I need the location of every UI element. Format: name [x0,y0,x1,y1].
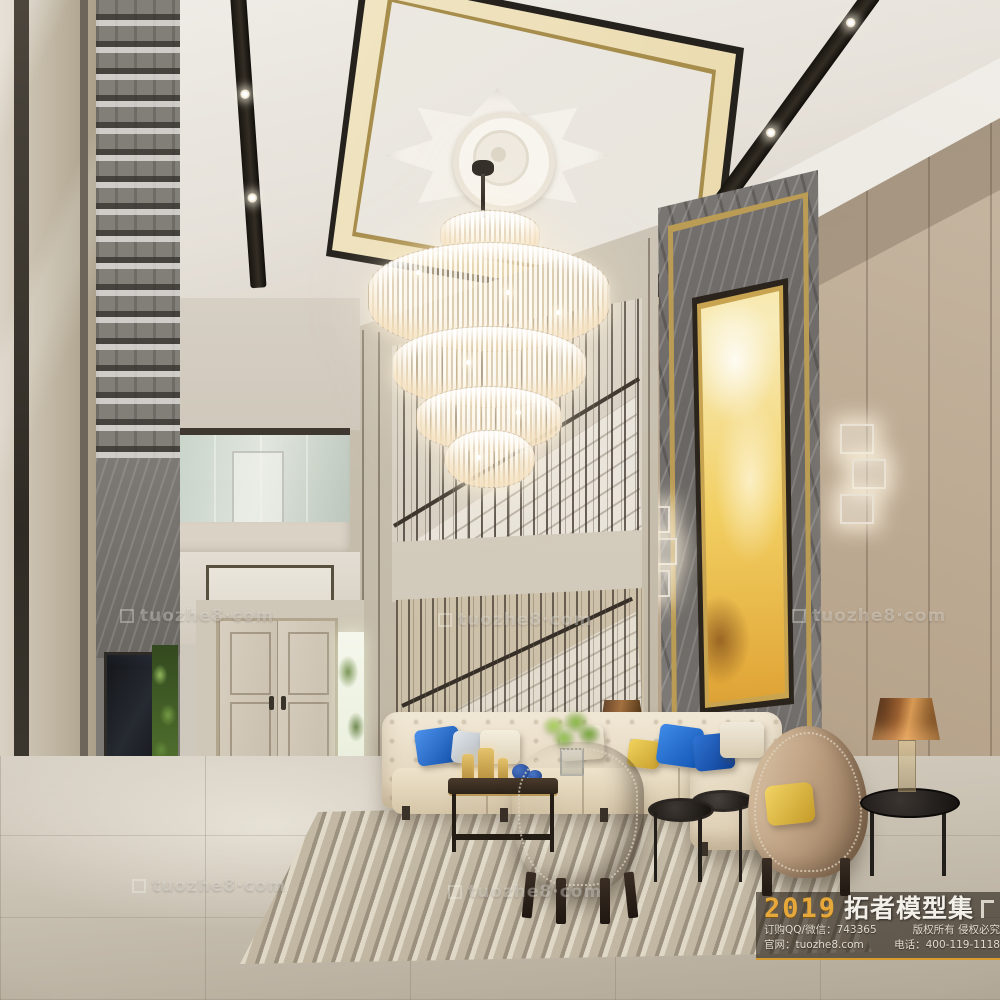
banner-contact-row: 订购QQ/微信：743365 版权所有 侵权必究 [764,923,1000,938]
banner-rights: 版权所有 侵权必究 [913,923,1000,938]
banner-corner-mark-icon [981,900,994,918]
watermark: tuozhe8·com [448,882,602,902]
banner-order-qq: 订购QQ/微信：743365 [764,923,877,938]
sofa-leg [402,806,410,820]
vendor-watermark-banner: 2019 拓者模型集 订购QQ/微信：743365 版权所有 侵权必究 官网：t… [756,892,1000,960]
chandelier-tier [444,430,536,488]
door-left-leaf [219,621,277,777]
door-panel [288,702,328,762]
nesting-table-legs [654,812,702,882]
left-wall-metal-strip [80,0,88,884]
banner-brand-name: 拓者模型集 [844,895,974,923]
gold-vase-decor [498,758,508,780]
mezzanine-wall [168,298,360,430]
crystal-sparkle [416,270,421,275]
upper-hallway-door [232,451,284,527]
yellow-pillow [764,782,816,827]
banner-website: 官网：tuozhe8.com [764,938,864,953]
watermark-text: tuozhe8·com [458,610,592,630]
gold-vase-decor [462,754,474,780]
wall-reveal-line [648,238,650,778]
interior-render-photo: tuozhe8·com tuozhe8·com tuozhe8·com tuoz… [0,0,1000,1000]
taupe-velvet-armchair-back [512,742,644,892]
table-lamp-glass-base [898,740,916,792]
crystal-chandelier [356,160,620,492]
banner-phone: 电话：400-119-1118 [894,938,1000,953]
crystal-sparkle [466,360,471,365]
sconce-glow-square [840,494,874,524]
planter-greenery [152,645,178,773]
door-panel [230,702,270,762]
column-fretwork-panel [96,0,180,458]
banner-site-row: 官网：tuozhe8.com 电话：400-119-1118 [764,938,1000,953]
spotlight [844,16,858,30]
sconce-glow-square [852,459,886,489]
crystal-sparkle [476,455,481,460]
watermark-logo-icon [792,609,806,623]
watermark-logo-icon [120,609,134,623]
door-panel [288,632,328,695]
black-round-side-table [860,788,960,818]
watermark-text: tuozhe8·com [468,882,602,902]
banner-title-row: 2019 拓者模型集 [764,895,1000,923]
watermark-text: tuozhe8·com [140,606,274,626]
left-wall-metal-strip [14,0,29,884]
door-panel [230,632,270,695]
banner-year: 2019 [764,895,837,922]
door-handle [281,696,286,710]
gold-vase-decor [478,748,494,780]
armchair-leg [840,858,850,896]
watermark: tuozhe8·com [438,610,592,630]
armchair-leg [762,858,772,896]
watermark-text: tuozhe8·com [152,876,286,896]
column-marble-mid [96,458,180,658]
watermark: tuozhe8·com [120,606,274,626]
corridor-window-greenery [338,632,364,772]
nailhead-trim [518,748,638,886]
wall-sconce-right [840,424,888,526]
spotlight [240,89,251,100]
watermark-logo-icon [132,879,146,893]
spotlight [764,126,778,140]
watermark-logo-icon [448,885,462,899]
watermark: tuozhe8·com [132,876,286,896]
door-right-leaf [277,621,335,777]
spotlight [247,193,258,204]
door-handle [269,696,274,710]
sconce-glow-square [840,424,874,454]
watermark: tuozhe8·com [792,606,946,626]
copper-table-lamp-shade [872,698,940,740]
crystal-sparkle [556,310,561,315]
crystal-sparkle [516,410,521,415]
watermark-logo-icon [438,613,452,627]
crystal-sparkle [506,290,511,295]
watermark-text: tuozhe8·com [812,606,946,626]
mezzanine-glass-balustrade [168,428,350,529]
cream-pillow [720,722,764,758]
